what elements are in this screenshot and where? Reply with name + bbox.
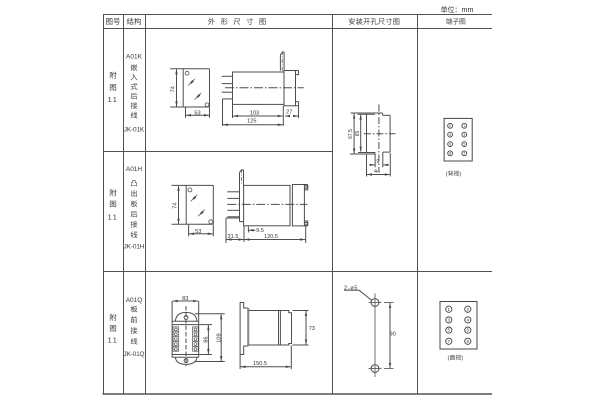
svg-text:5: 5 <box>463 142 465 146</box>
svg-text:3: 3 <box>463 133 465 137</box>
svg-text:125: 125 <box>247 118 256 124</box>
svg-text:2: 2 <box>449 124 451 128</box>
svg-text:44: 44 <box>374 169 380 175</box>
svg-text:(: ( <box>446 171 448 177</box>
svg-text:31.5: 31.5 <box>228 234 239 240</box>
svg-text:mm: mm <box>462 5 474 14</box>
svg-text:9.5: 9.5 <box>256 228 264 234</box>
svg-text:86: 86 <box>204 336 210 342</box>
svg-text:150.5: 150.5 <box>253 361 267 367</box>
svg-text:): ) <box>459 171 461 177</box>
svg-text:7: 7 <box>463 152 465 156</box>
svg-text:109: 109 <box>216 333 222 342</box>
svg-text:11: 11 <box>108 95 119 104</box>
svg-text:67.5: 67.5 <box>348 129 354 139</box>
svg-text:JK-01H: JK-01H <box>124 244 145 251</box>
svg-text:A01Q: A01Q <box>126 297 143 304</box>
svg-text:74: 74 <box>171 86 177 92</box>
svg-text:2-ø5: 2-ø5 <box>344 286 358 292</box>
svg-text:): ) <box>461 355 463 361</box>
svg-text:65: 65 <box>355 131 361 137</box>
svg-text:A01H: A01H <box>126 166 143 173</box>
svg-text:73: 73 <box>309 326 315 332</box>
svg-text:A01K: A01K <box>126 54 143 61</box>
svg-text:JK-01K: JK-01K <box>124 126 145 133</box>
svg-text:6: 6 <box>449 142 451 146</box>
svg-text:9: 9 <box>376 159 379 165</box>
svg-text:103: 103 <box>250 110 259 116</box>
svg-text:120.5: 120.5 <box>264 234 278 240</box>
svg-text:(: ( <box>448 355 450 361</box>
svg-text:53: 53 <box>194 110 200 116</box>
svg-text:JK-01Q: JK-01Q <box>124 351 145 358</box>
svg-text:90: 90 <box>389 331 395 337</box>
svg-text:27: 27 <box>286 109 292 115</box>
svg-text:83: 83 <box>182 296 188 302</box>
svg-text:53: 53 <box>195 229 201 235</box>
svg-text:11: 11 <box>108 336 119 345</box>
svg-text:8: 8 <box>449 152 451 156</box>
svg-text:1: 1 <box>463 124 465 128</box>
svg-text:74: 74 <box>173 203 179 209</box>
svg-text:11: 11 <box>108 213 119 222</box>
svg-text:4: 4 <box>449 133 451 137</box>
